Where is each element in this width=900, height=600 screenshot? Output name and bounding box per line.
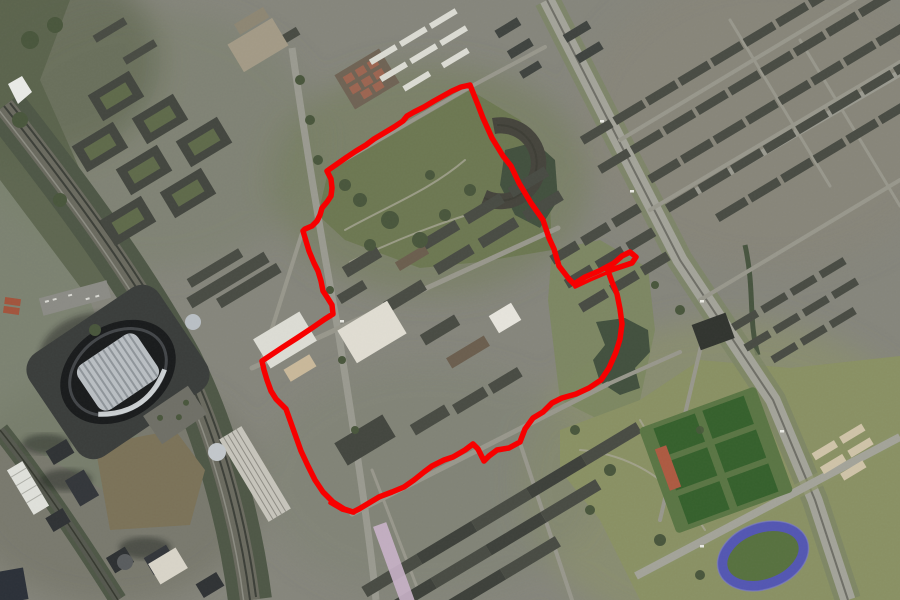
satellite-map[interactable] [0, 0, 900, 600]
satellite-basemap [0, 0, 900, 600]
